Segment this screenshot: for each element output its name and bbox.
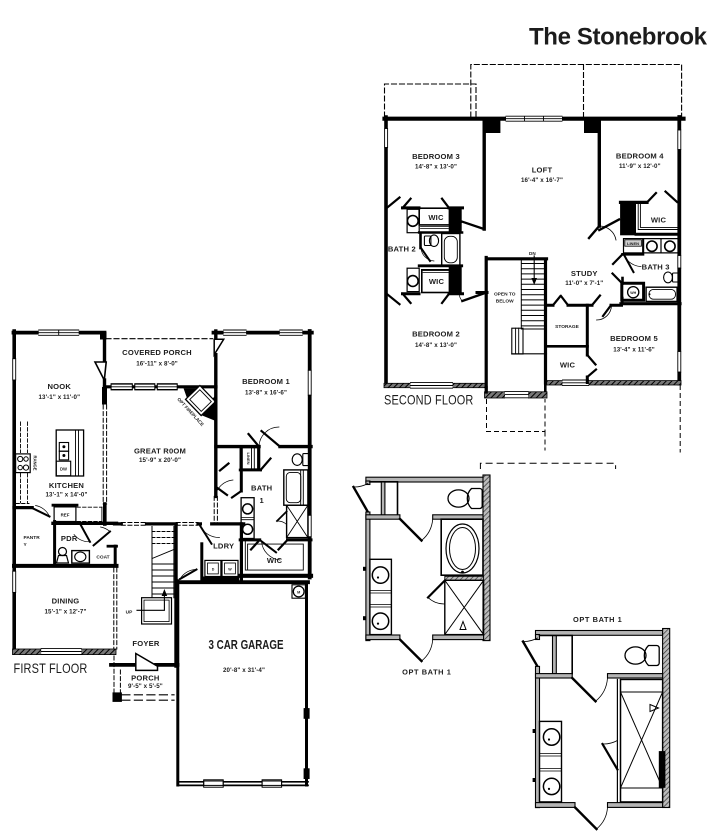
svg-text:BATH 3: BATH 3 xyxy=(642,263,670,272)
svg-text:BEDROOM 4: BEDROOM 4 xyxy=(616,152,664,161)
svg-text:OPT BATH 1: OPT BATH 1 xyxy=(573,615,622,624)
svg-text:COVERED PORCH: COVERED PORCH xyxy=(122,348,192,357)
svg-text:D: D xyxy=(212,568,215,572)
svg-text:PDR: PDR xyxy=(61,534,78,543)
svg-text:13'-4" x 11'-6": 13'-4" x 11'-6" xyxy=(613,347,655,354)
svg-text:DW: DW xyxy=(60,467,67,472)
svg-text:15'-1" x 12'-7": 15'-1" x 12'-7" xyxy=(45,609,87,616)
svg-text:20'-8" x 31'-4": 20'-8" x 31'-4" xyxy=(223,667,265,674)
svg-text:13'-8" x 16'-6": 13'-8" x 16'-6" xyxy=(245,390,287,397)
svg-text:COAT: COAT xyxy=(96,555,109,561)
svg-text:OPEN TO: OPEN TO xyxy=(494,292,516,298)
svg-text:UP: UP xyxy=(126,609,133,615)
svg-text:13'-1" x 14'-0": 13'-1" x 14'-0" xyxy=(46,492,88,499)
svg-text:LINEN: LINEN xyxy=(246,453,251,465)
svg-text:WIC: WIC xyxy=(560,361,576,370)
svg-text:GREAT R0OM: GREAT R0OM xyxy=(134,447,186,456)
svg-text:STUDY: STUDY xyxy=(571,269,598,278)
svg-text:11'-0" x 7'-1": 11'-0" x 7'-1" xyxy=(565,280,603,287)
svg-text:BEDROOM 3: BEDROOM 3 xyxy=(412,152,460,161)
svg-text:1: 1 xyxy=(259,496,264,505)
svg-text:11'-9" x 12'-0": 11'-9" x 12'-0" xyxy=(619,163,661,170)
svg-text:BATH: BATH xyxy=(251,484,272,493)
svg-text:14'-8" x 13'-0": 14'-8" x 13'-0" xyxy=(415,342,457,349)
svg-text:M: M xyxy=(297,590,300,594)
svg-text:SECOND FLOOR: SECOND FLOOR xyxy=(384,393,474,408)
svg-text:BATH 2: BATH 2 xyxy=(388,245,416,254)
svg-text:DN: DN xyxy=(529,251,536,256)
svg-text:WIC: WIC xyxy=(267,556,283,565)
svg-text:WIC: WIC xyxy=(429,277,445,286)
svg-text:BEDROOM 5: BEDROOM 5 xyxy=(610,334,658,343)
svg-text:KITCHEN: KITCHEN xyxy=(49,481,84,490)
svg-text:BEDROOM 2: BEDROOM 2 xyxy=(412,330,460,339)
svg-text:STORAGE: STORAGE xyxy=(555,324,579,330)
svg-text:NOOK: NOOK xyxy=(48,382,72,391)
svg-text:15'-9" x 20'-0": 15'-9" x 20'-0" xyxy=(139,457,181,464)
svg-text:PANTR: PANTR xyxy=(24,535,41,541)
svg-text:WIC: WIC xyxy=(651,216,667,225)
svg-text:13'-1" x 11'-0": 13'-1" x 11'-0" xyxy=(38,394,80,401)
svg-text:PORCH: PORCH xyxy=(131,674,159,683)
svg-text:WH: WH xyxy=(630,291,636,295)
svg-text:16'-4" x 16'-7": 16'-4" x 16'-7" xyxy=(521,177,563,184)
svg-text:BEDROOM 1: BEDROOM 1 xyxy=(242,377,290,386)
svg-text:16'-11" x 8'-0": 16'-11" x 8'-0" xyxy=(136,361,178,368)
svg-text:3 CAR GARAGE: 3 CAR GARAGE xyxy=(209,638,284,652)
svg-text:BELOW: BELOW xyxy=(496,299,514,305)
svg-text:LOFT: LOFT xyxy=(532,166,553,175)
svg-text:OPT BATH 1: OPT BATH 1 xyxy=(402,668,451,677)
svg-text:LINEN: LINEN xyxy=(627,241,639,246)
svg-text:REF: REF xyxy=(61,513,70,518)
svg-text:The Stonebrook: The Stonebrook xyxy=(529,24,708,51)
svg-text:W: W xyxy=(228,568,232,572)
svg-text:14'-8" x 13'-0": 14'-8" x 13'-0" xyxy=(415,164,457,171)
svg-text:DINING: DINING xyxy=(52,597,80,606)
svg-text:FOYER: FOYER xyxy=(132,639,159,648)
svg-text:LDRY: LDRY xyxy=(213,542,234,551)
svg-text:WIC: WIC xyxy=(428,213,444,222)
svg-text:FIRST FLOOR: FIRST FLOOR xyxy=(14,661,88,676)
svg-text:RANGE: RANGE xyxy=(33,455,38,470)
svg-text:9'-5" x 5'-5": 9'-5" x 5'-5" xyxy=(128,683,163,690)
